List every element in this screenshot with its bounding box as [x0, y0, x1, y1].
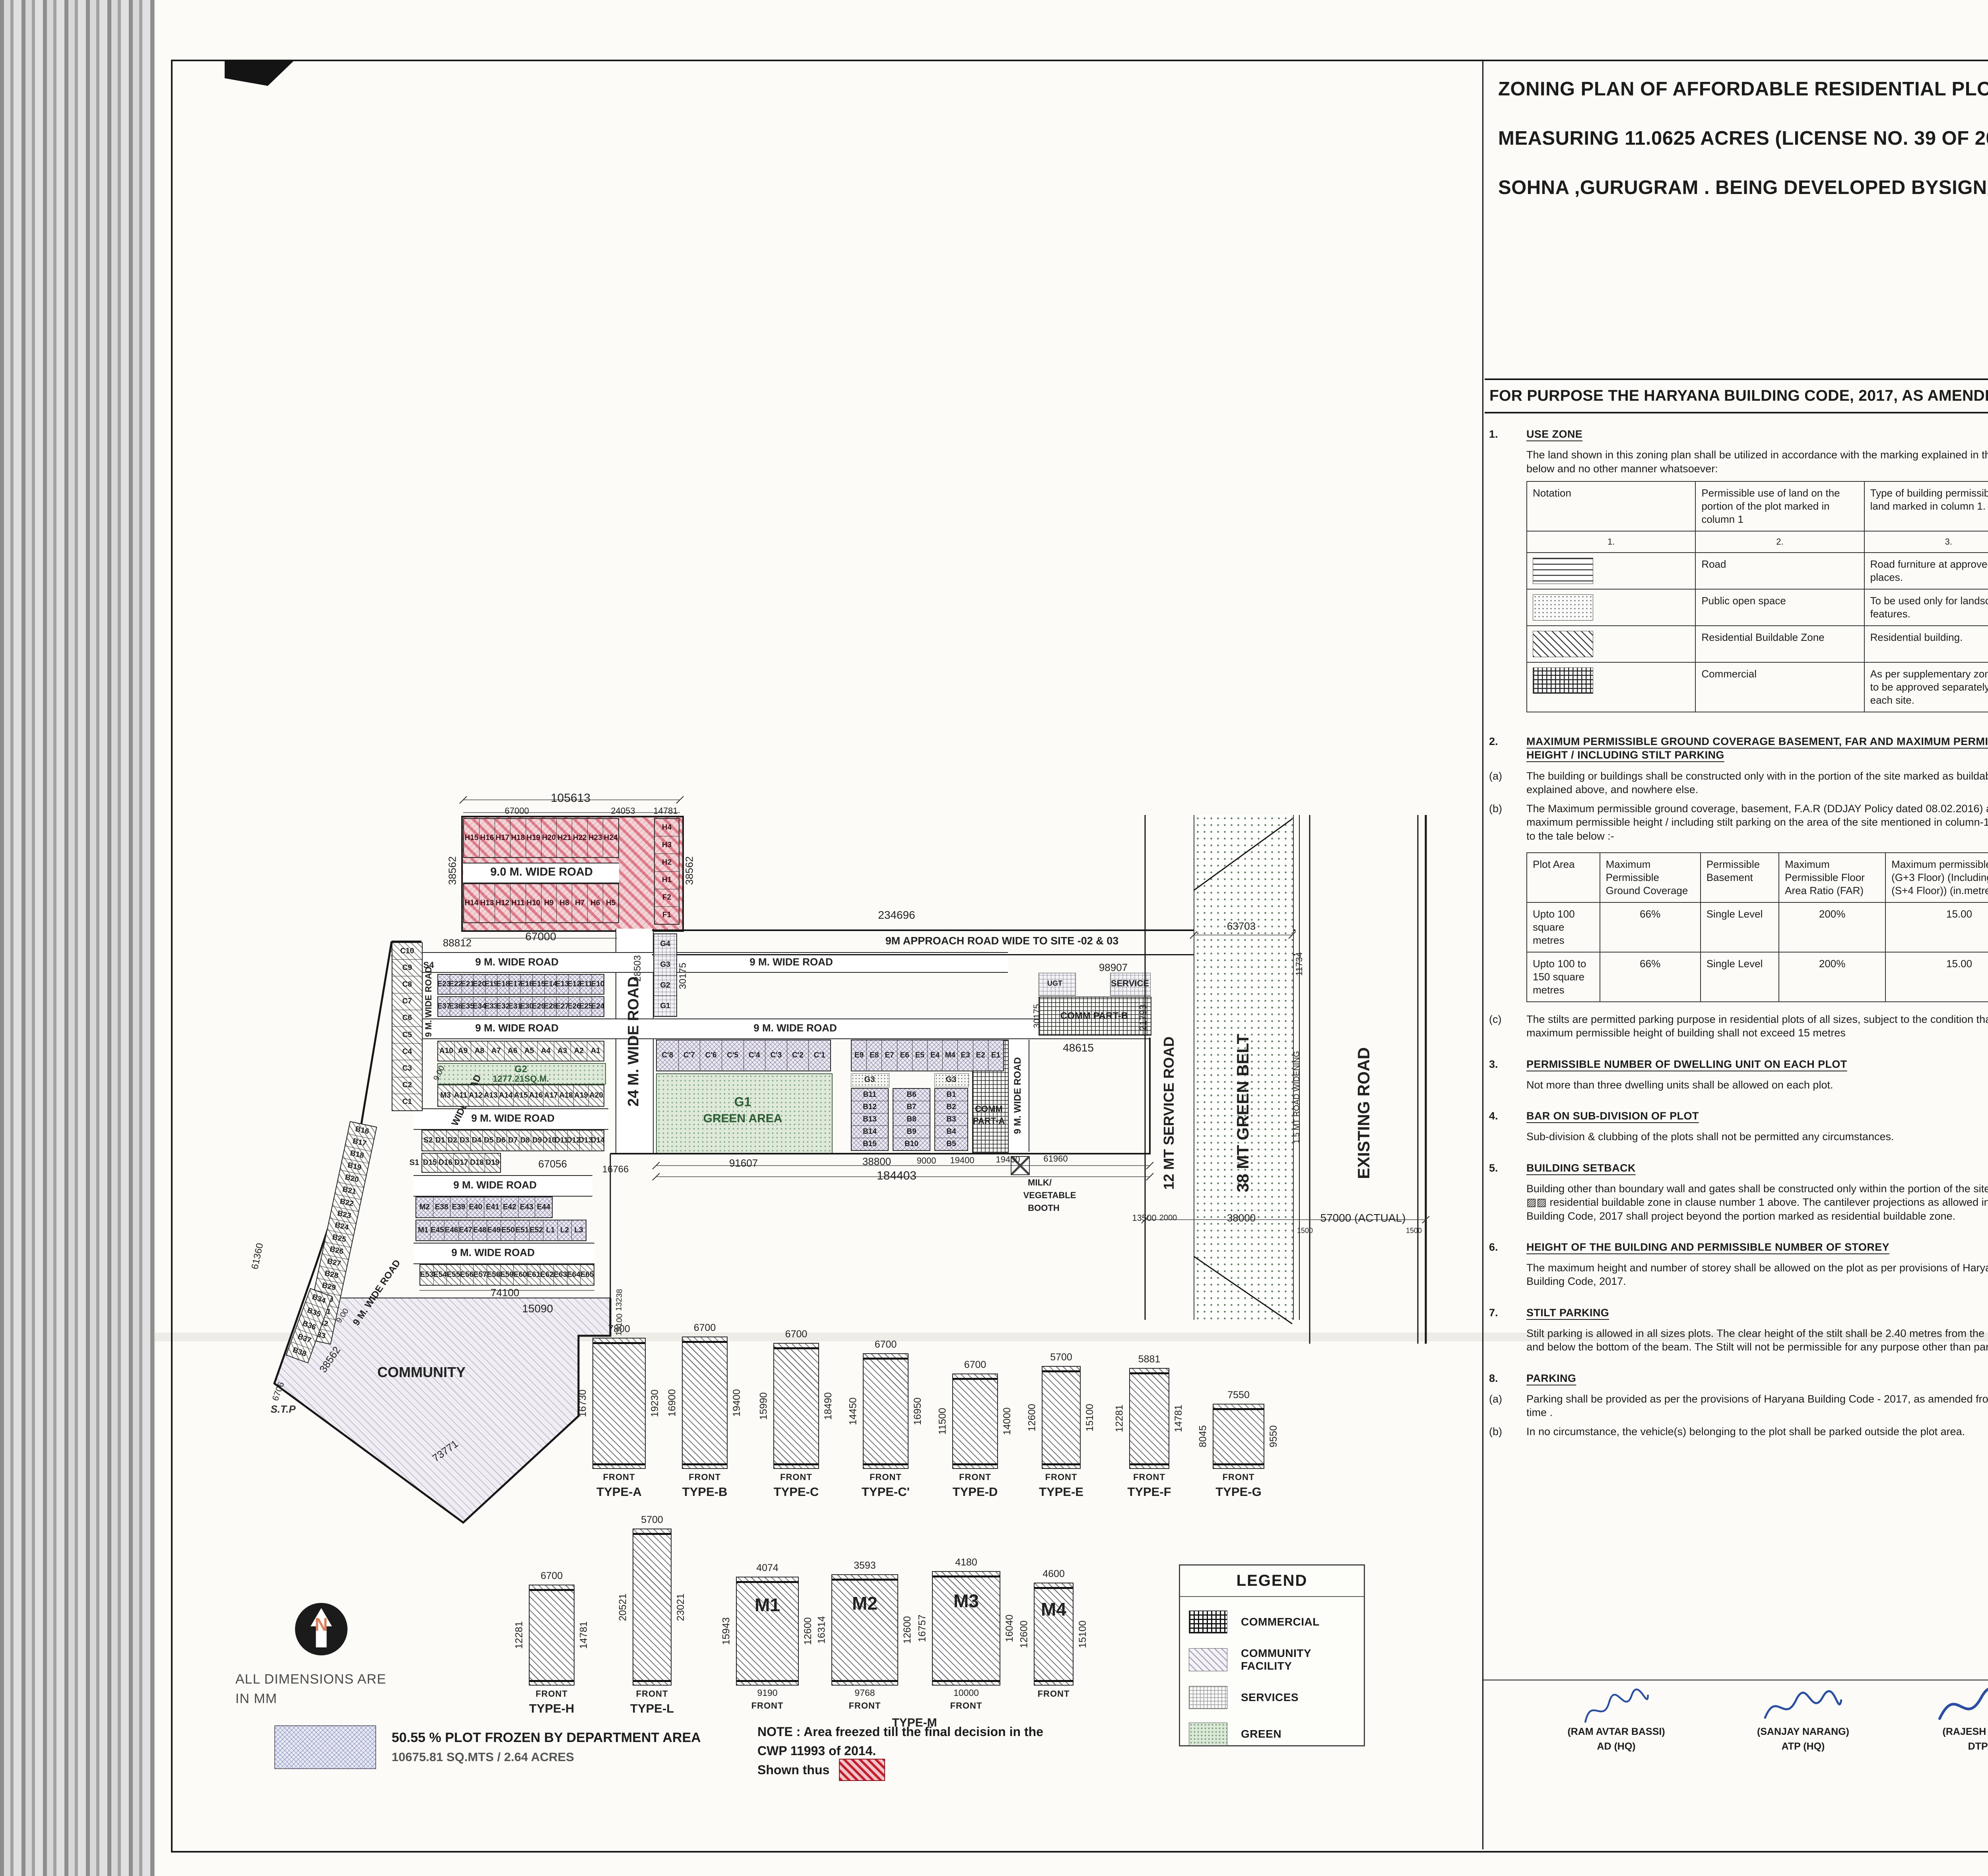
plot-type-diagram: 67001445016950FRONTTYPE-C'	[863, 1353, 909, 1469]
plan-label: 88812	[443, 937, 472, 949]
plan-label: COMMUNITY	[377, 1364, 466, 1381]
plan-label: 9 M. WIDE ROAD	[423, 966, 434, 1037]
plot-type-diagram: 41801675716040M310000FRONT	[932, 1571, 1000, 1686]
plan-label: COMM PART-B	[1060, 1011, 1128, 1022]
plan-label: 38562	[683, 856, 696, 885]
plan-label: SERVICE	[1111, 978, 1149, 989]
plan-label: 48615	[1063, 1042, 1094, 1054]
plan-label: G3	[864, 1075, 875, 1084]
plan-label: 9M APPROACH ROAD WIDE TO SITE -02 & 03	[885, 935, 1119, 947]
plan-label: 67056	[538, 1158, 567, 1170]
plan-label: 21793	[1138, 1005, 1149, 1031]
plot-row: M1E45E46E47E48E49E50E51E52L1L2L3	[415, 1220, 586, 1241]
plot-type-diagram: 755080459550FRONTTYPE-G	[1213, 1404, 1264, 1469]
plan-label: VEGETABLE	[1023, 1190, 1076, 1201]
plan-label: S4	[423, 960, 434, 970]
plot-row: B1B2B3B4B5	[934, 1088, 968, 1151]
plan-label: BOOTH	[1028, 1203, 1059, 1213]
plan-label: 57000 (ACTUAL)	[1320, 1212, 1406, 1224]
plan-label: 9 M. WIDE ROAD	[753, 1022, 837, 1034]
plot-row: B11B12B13B14B15	[851, 1088, 889, 1151]
plan-label: 16766	[602, 1164, 629, 1175]
plan-label: 24053	[611, 806, 635, 816]
plot-row: M2E38E39E40E41E42E43E44	[415, 1197, 553, 1218]
plot-type-diagram: 58811228114781FRONTTYPE-F	[1129, 1368, 1169, 1469]
plan-label: 91607	[729, 1157, 758, 1170]
plan-label: TYPE-M	[892, 1716, 937, 1730]
plot-type-diagram: 67001599018490FRONTTYPE-C	[773, 1343, 819, 1469]
plan-label: EXISTING ROAD	[1354, 1047, 1373, 1179]
plot-type-diagram: 35931631412600M29768FRONT	[831, 1574, 898, 1686]
plot-row: E37E36E35E34E33E32E31E30E29E28E27E26E25E…	[437, 996, 604, 1017]
plot-type-diagram: 57002052123021FRONTTYPE-L	[633, 1529, 672, 1686]
plan-label: G2	[514, 1064, 527, 1075]
plan-label: 9 M. WIDE ROAD	[1012, 1057, 1023, 1134]
plot-row: B6B7B8B9B10	[893, 1088, 930, 1151]
plan-label: 63703	[1227, 920, 1256, 933]
plan-label: 12 MT SERVICE ROAD	[1161, 1036, 1177, 1189]
plot-row: E53E54E55E56E57E58E59E60E61E62E63E64E65	[419, 1264, 594, 1286]
plan-label: 184403	[877, 1169, 916, 1183]
plan-label: 24 M. WIDE ROAD	[625, 976, 643, 1106]
plan-label: PART-A	[973, 1116, 1005, 1126]
plot-type-diagram: 67001228114781FRONTTYPE-H	[529, 1585, 575, 1686]
plot-row: D15D16D17D18D19	[421, 1153, 501, 1173]
plan-label: S1	[410, 1158, 419, 1168]
plot-type-diagram: 46001260015100M4FRONT	[1034, 1583, 1074, 1686]
plan-label: 9 M. WIDE ROAD	[471, 1112, 554, 1125]
plot-type-diagram: 57001260015100FRONTTYPE-E	[1042, 1366, 1081, 1469]
plan-label: 9 M. WIDE ROAD	[749, 956, 833, 968]
plan-label: 9000	[917, 1156, 936, 1166]
plan-label: S.T.P	[270, 1403, 295, 1416]
plan-label: 1277.21SQ.M.	[493, 1074, 549, 1084]
plan-label: 9 M. WIDE ROAD	[453, 1179, 536, 1191]
plan-label: MILK/	[1028, 1178, 1052, 1188]
plan-label: 1500	[1406, 1227, 1422, 1235]
plan-label: 30175	[1032, 1004, 1042, 1028]
plot-type-diagram: 67001690019400FRONTTYPE-B	[682, 1337, 728, 1469]
plan-label: 9 M. WIDE ROAD	[451, 1247, 534, 1259]
plan-label: 234696	[878, 909, 915, 922]
plot-row: H14H13H12H11H10H9H8H7H6H5	[463, 883, 619, 923]
plan-label: 9 M. WIDE ROAD	[475, 956, 558, 968]
plot-row: C10C9C8C7C6C5C4C3C2C1	[392, 942, 423, 1111]
plan-label: 28503	[632, 955, 643, 982]
scanned-sheet: ZONING PLAN OF AFFORDABLE RESIDENTIAL PL…	[0, 0, 1988, 1876]
plot-row: C'8C'7C'6C'5C'4C'3C'2C'1	[656, 1040, 831, 1071]
plan-label: 13500	[1132, 1213, 1156, 1223]
plan-label: 14781	[653, 806, 678, 816]
plan-label: G1	[734, 1095, 751, 1110]
plan-label: 11734	[1294, 952, 1305, 976]
plan-label: 19400	[950, 1155, 974, 1166]
plot-row: A10A9A8A7A6A5A4A3A2A1	[437, 1041, 604, 1061]
plan-label: 13238	[615, 1289, 625, 1311]
plan-label: 19400	[996, 1154, 1020, 1165]
plot-type-diagram: 67001150014000FRONTTYPE-D	[952, 1374, 998, 1469]
plan-label: 67000	[525, 930, 556, 943]
plan-label: 38000	[1227, 1212, 1256, 1224]
plot-row: H4H3H2H1F2F1	[654, 818, 679, 925]
plot-row: E9E8E7E6E5E4M4E3E2E1	[851, 1040, 1004, 1071]
plot-type-diagram: 78001673019230FRONTTYPE-A	[592, 1338, 646, 1469]
plot-type-diagram: 40741594312600M19190FRONT	[736, 1577, 799, 1686]
plan-label: 30175	[678, 963, 689, 989]
plot-row: G4G3G2G1	[653, 933, 677, 1017]
plan-label: G3	[946, 1075, 957, 1084]
plan-label: 2000	[1159, 1214, 1177, 1223]
plot-row: H15H16H17H18H19H20H21H22H23H24	[463, 818, 619, 858]
plan-label: 1500	[1297, 1227, 1313, 1235]
plot-row: M3A11A12A13A14A15A16A17A18A19A20	[437, 1084, 604, 1107]
plan-label: 1.5 MT ROAD WIDENING	[1293, 1051, 1302, 1144]
plan-label: 67000	[505, 806, 529, 816]
plan-label: 38562	[447, 856, 459, 885]
plan-label: 98907	[1099, 962, 1128, 974]
plan-label: GREEN AREA	[703, 1112, 782, 1125]
plan-label: UGT	[1047, 980, 1062, 988]
plot-row: E23E22E21E20E19E18E17E16E15E14E13E12E11E…	[437, 974, 604, 995]
plan-label: 9.0 M. WIDE ROAD	[490, 866, 593, 879]
plan-label: 61960	[1043, 1154, 1068, 1164]
plan-label: 15090	[522, 1302, 553, 1315]
plan-label: COMM	[975, 1104, 1003, 1114]
plan-label: 105613	[551, 792, 590, 805]
plan-label: 9 M. WIDE ROAD	[475, 1022, 558, 1034]
plan-label: 38 MT GREEN BELT	[1233, 1034, 1252, 1192]
plot-row: S2D1D2D3D4D5D6D7D8D9D10D11D12D13D14	[421, 1130, 604, 1151]
plan-label: 74100	[491, 1287, 519, 1299]
plan-label: 38800	[862, 1156, 891, 1168]
